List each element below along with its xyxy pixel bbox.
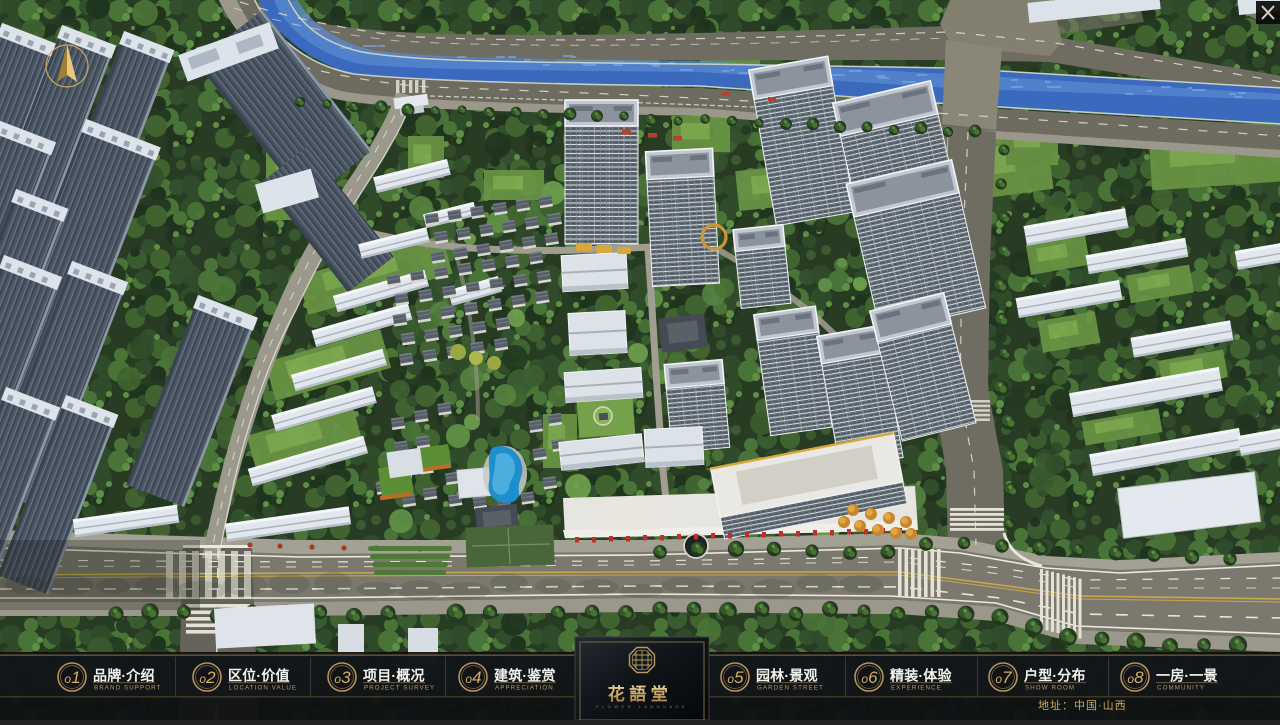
- svg-text:EXPERIENCE: EXPERIENCE: [891, 685, 942, 692]
- svg-text:项目·概况: 项目·概况: [363, 668, 425, 684]
- svg-text:区位·价值: 区位·价值: [228, 668, 290, 684]
- svg-text:园林·景观: 园林·景观: [756, 668, 818, 684]
- svg-text:品牌·介绍: 品牌·介绍: [93, 668, 155, 684]
- svg-text:精装·体验: 精装·体验: [890, 668, 952, 684]
- svg-text:GARDEN STREET: GARDEN STREET: [757, 685, 824, 692]
- svg-text:BRAND SUPPORT: BRAND SUPPORT: [94, 685, 161, 692]
- svg-text:F L O W E R · L A N G U A G E: F L O W E R · L A N G U A G E: [596, 704, 686, 709]
- svg-text:建筑·鉴赏: 建筑·鉴赏: [494, 668, 556, 684]
- svg-text:花語堂: 花語堂: [608, 684, 673, 704]
- svg-text:SHOW ROOM: SHOW ROOM: [1025, 685, 1075, 692]
- svg-text:地址：中国·山西: 地址：中国·山西: [1038, 698, 1127, 712]
- svg-text:COMMUNITY: COMMUNITY: [1157, 685, 1205, 692]
- svg-text:APPRECIATION: APPRECIATION: [495, 685, 554, 692]
- svg-text:PROJECT SURVEY: PROJECT SURVEY: [364, 685, 435, 692]
- svg-text:户型·分布: 户型·分布: [1024, 668, 1086, 684]
- svg-text:LOCATION VALUE: LOCATION VALUE: [229, 685, 297, 692]
- svg-text:一房·一景: 一房·一景: [1156, 668, 1218, 684]
